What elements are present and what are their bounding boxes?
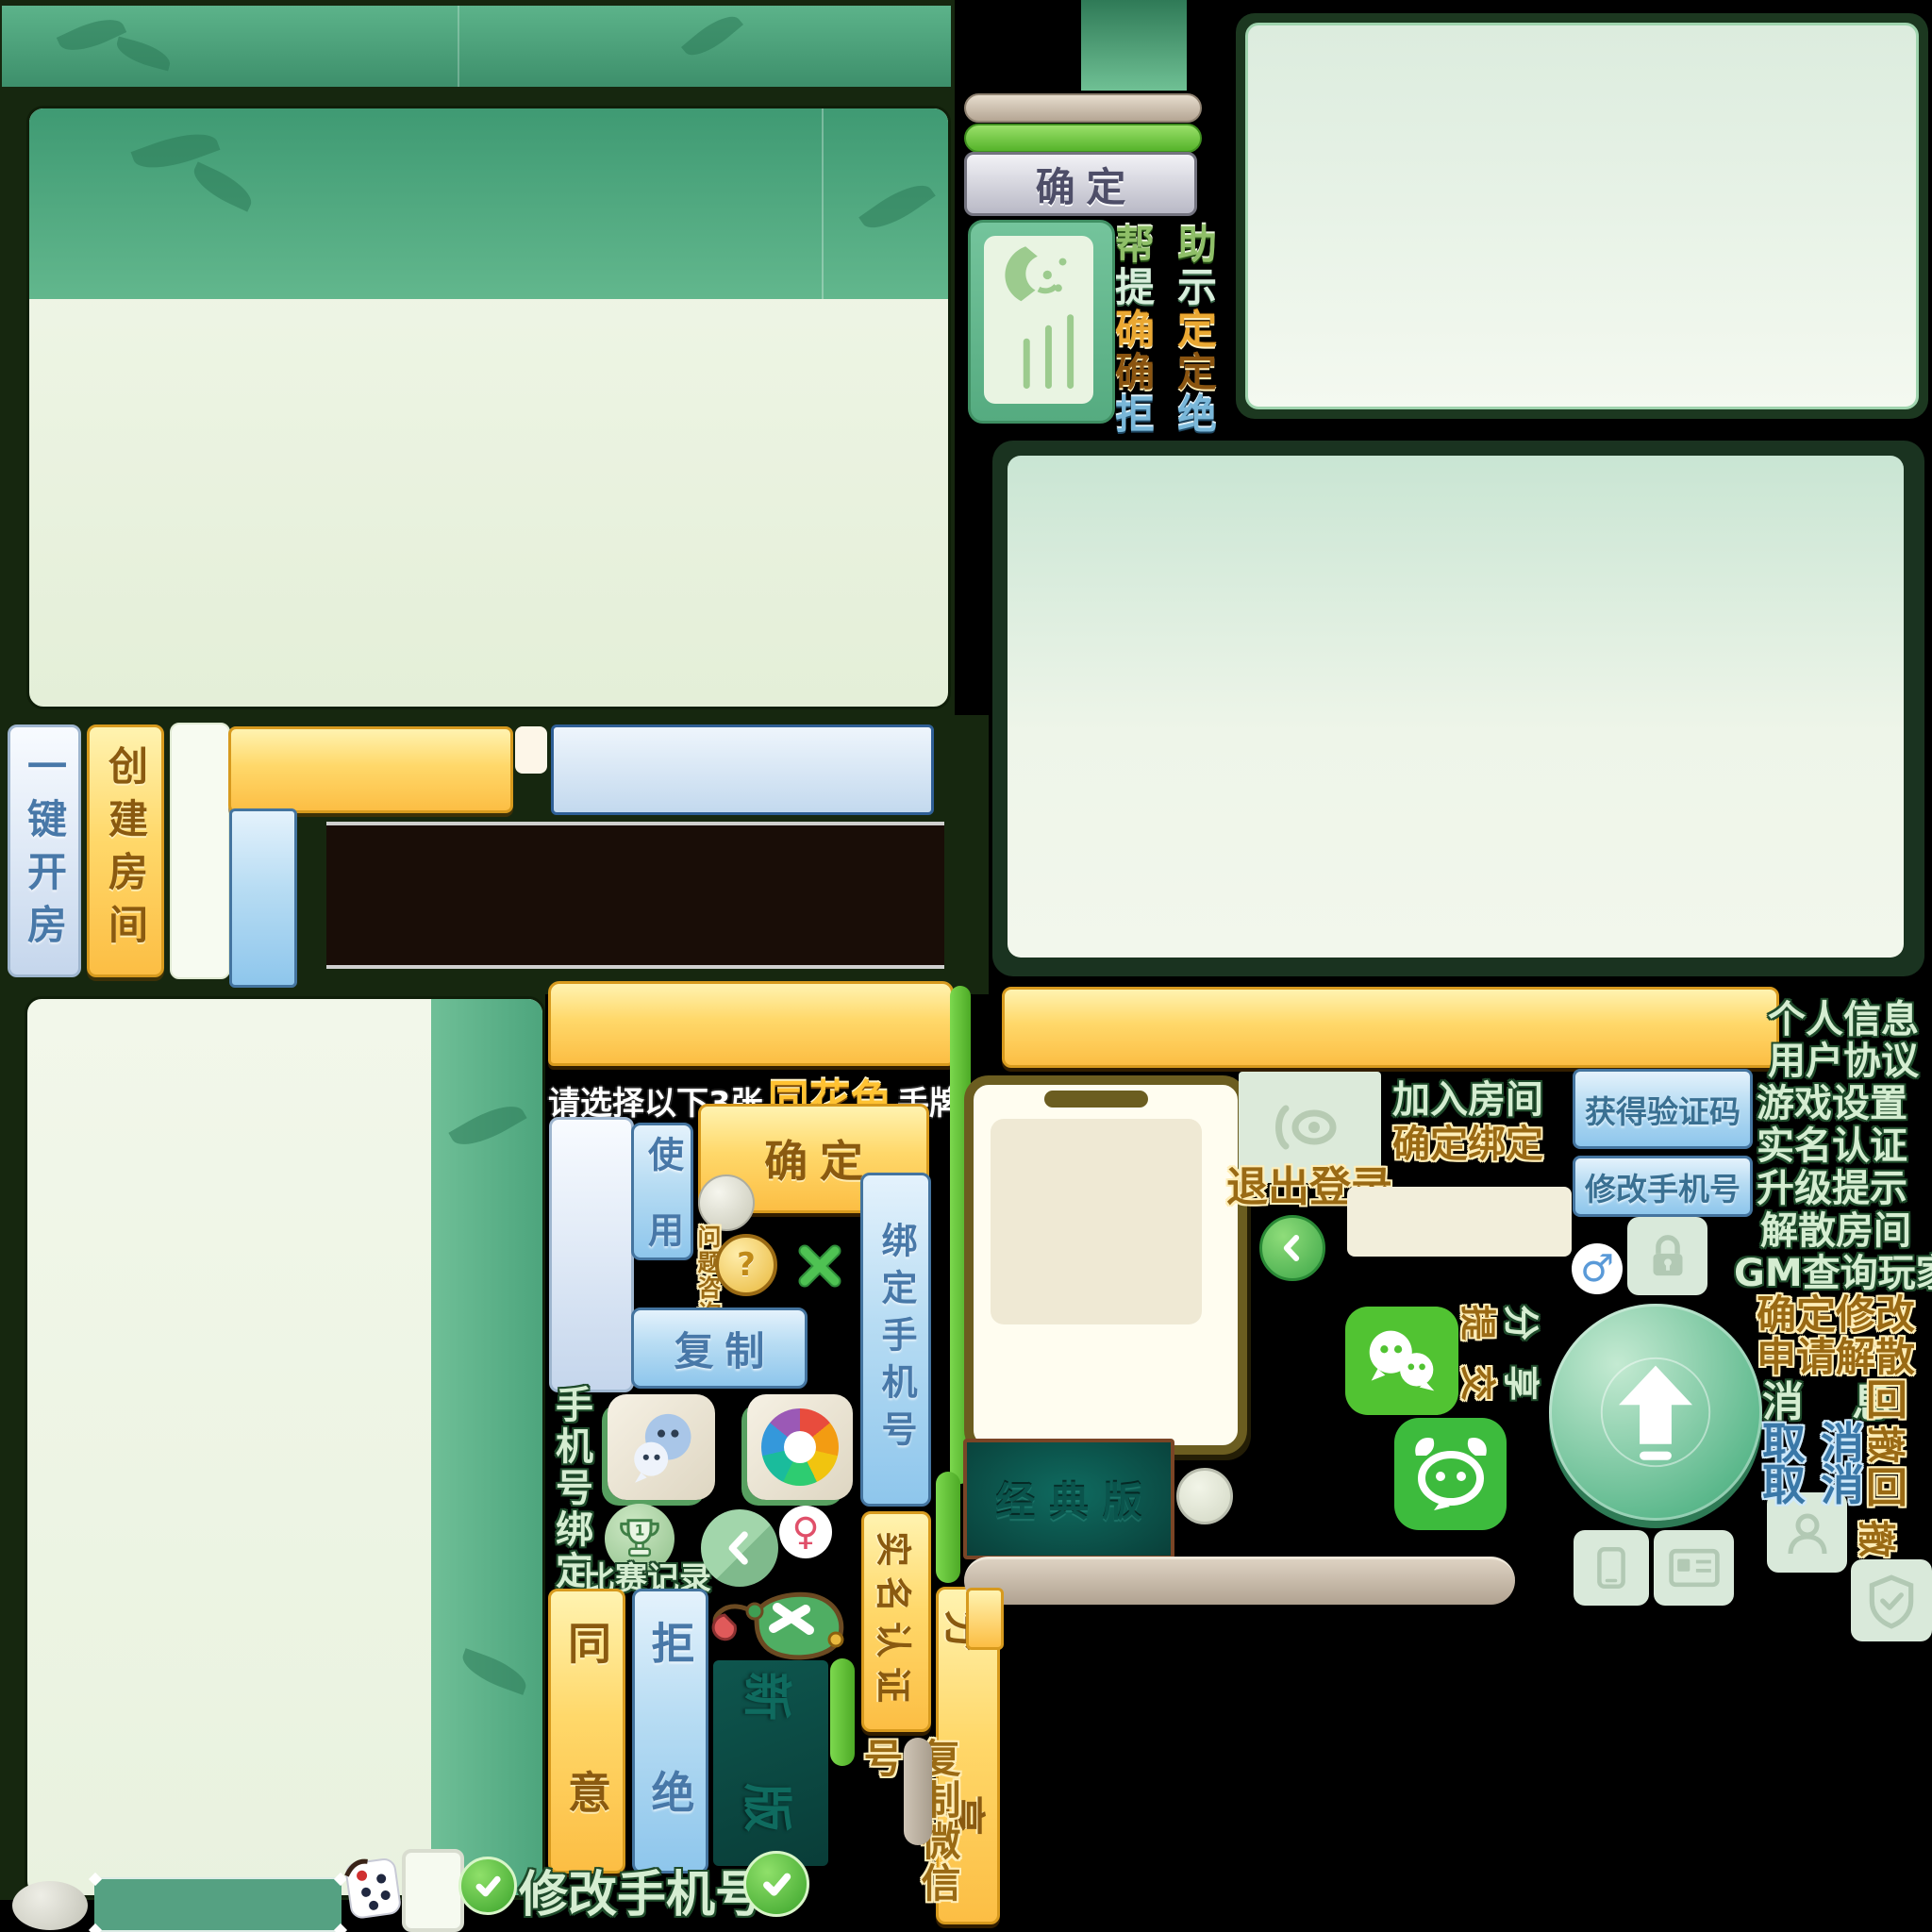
wechat-bubbles-icon [619,1405,704,1490]
create-room-label: 创建房间 [97,745,155,957]
chevron-left-icon [1276,1232,1308,1264]
sprite-atlas: 确 定 帮 助 提 示 确 定 确 定 拒 绝 [0,0,1932,1932]
yellow-header-bar-mid [548,981,954,1066]
eye-hidden-icon [1271,1101,1350,1154]
classic-version-label: 经 典 版 [995,1471,1141,1528]
label-help-1: 帮 [1111,213,1158,256]
upload-arrow-icon [1594,1351,1717,1474]
back-button-muted[interactable] [701,1509,778,1587]
blank-blue-vertical-bar[interactable] [229,808,297,988]
confirm-gray-button[interactable]: 确 定 [964,152,1197,216]
agree-label: 同 意 [556,1621,618,1841]
phone-plate[interactable] [1574,1530,1649,1606]
dice-icon[interactable] [341,1844,402,1925]
panda-stats-card[interactable] [968,220,1115,424]
blank-tile-square [402,1849,464,1932]
female-symbol-icon: ♀ [779,1506,832,1558]
pale-circle-blank [1176,1468,1233,1524]
panda-stats-inner [984,236,1093,404]
wechat-app-button[interactable] [1345,1307,1458,1415]
check-icon-small [458,1857,517,1915]
chevron-left-icon [719,1527,760,1569]
close-x-icon[interactable] [795,1241,844,1291]
refuse-label: 拒 绝 [640,1621,702,1841]
input-field-beige[interactable] [1347,1187,1572,1257]
back-button-green[interactable] [1259,1215,1325,1281]
lock-icon [1639,1227,1697,1286]
yellow-header-bar-right [1002,987,1779,1068]
banner-strip-small [1081,0,1187,91]
classic-version-board[interactable]: 经 典 版 [963,1439,1174,1559]
recall-che-2: 撤 [1852,1520,1907,1557]
aperture-icon [761,1408,839,1486]
label-help-2: 助 [1174,213,1221,256]
wechat-tile-button[interactable] [608,1394,715,1500]
panda-chart-icon [984,236,1093,404]
new-version-board: 新 版 [713,1660,828,1866]
share-label-rotated: 分享 [1498,1305,1550,1425]
create-room-button[interactable]: 创建房间 [87,724,164,977]
bind-phone-button[interactable]: 绑定手机号 [860,1173,931,1507]
label-hint-2: 示 [1174,256,1221,298]
label-confirm-2: 定 [1174,298,1221,341]
label-refuse-2: 绝 [1174,383,1221,425]
shield-plate[interactable] [1851,1559,1932,1641]
gray-pill-c [904,1738,932,1845]
panel-mid-right [1008,456,1904,958]
wechat-logo-icon [1353,1315,1451,1407]
get-verify-code-button[interactable]: 获得验证码 [1573,1069,1753,1149]
new-version-label: 新 版 [736,1672,807,1855]
one-key-room-button[interactable]: 一键开房 [8,724,81,977]
dialog-panel-header [29,108,948,299]
blank-cream-square [515,726,547,774]
bull-face-icon [1404,1427,1498,1522]
gray-ellipse-blank [12,1881,88,1930]
copy-button[interactable]: 复 制 [631,1307,808,1389]
green-progress-pill [964,124,1202,153]
lock-plate[interactable] [1627,1217,1707,1295]
word-pair-grid: 帮 助 提 示 确 定 确 定 拒 绝 [1111,213,1223,432]
label-confirm2-1: 确 [1111,341,1158,383]
agree-button[interactable]: 同 意 [548,1589,625,1874]
green-pill-b [936,1472,960,1583]
copy-label: 复 制 [675,1320,765,1377]
gray-circle-blank [698,1174,755,1231]
blank-pale-strip[interactable] [549,1117,634,1392]
bull-chat-app-button[interactable] [1394,1418,1507,1530]
confirm-gray-label: 确 定 [1036,156,1126,213]
bind-phone-label: 绑定手机号 [870,1222,922,1457]
tan-bar-long [964,1557,1515,1605]
refuse-button[interactable]: 拒 绝 [632,1589,708,1874]
id-card-plate[interactable] [1654,1530,1734,1606]
banner-strip [2,6,951,87]
label-confirm-1: 确 [1111,298,1158,341]
one-key-room-label: 一键开房 [16,745,74,957]
phone-mockup [964,1075,1247,1455]
camera-tile-button[interactable] [747,1394,853,1500]
realname-auth-label: 实名认证 [871,1531,923,1712]
phone-screen-inset [991,1119,1202,1324]
yellow-square-partial [966,1588,1004,1650]
panel-top-right [1245,23,1919,409]
confirm-yellow-label: 确 定 [764,1127,863,1190]
dice-bag-icon[interactable] [696,1585,858,1668]
modify-phone-button-label: 修改手机号 [1585,1164,1740,1209]
blank-blue-bar[interactable] [551,724,934,815]
modify-phone-button[interactable]: 修改手机号 [1573,1156,1753,1217]
male-symbol-icon: ♂ [1572,1243,1623,1294]
dialog-panel-large [26,106,951,709]
recall-hui-2: 回 [1866,1454,1907,1514]
recall-hui-1: 回 [1866,1366,1907,1426]
shield-check-icon [1862,1572,1921,1630]
selection-band[interactable] [94,1877,341,1932]
realname-auth-button[interactable]: 实名认证 [861,1511,931,1732]
confirm-bind-label[interactable]: 确定绑定 [1392,1113,1543,1168]
modify-phone-bottom-label[interactable]: 修改手机号 [519,1855,764,1925]
label-hint-1: 提 [1111,256,1158,298]
check-icon-large [743,1851,809,1917]
use-label: 使 用 [637,1136,689,1247]
phone-icon [1586,1542,1637,1593]
label-refuse-1: 拒 [1111,383,1158,425]
dark-list-panel [326,822,944,969]
blank-vertical-button[interactable] [170,723,230,979]
panel-bottom-left-green-strip [431,999,542,1895]
label-confirm2-2: 定 [1174,341,1221,383]
cancel-xiao-2[interactable]: 消 [1821,1451,1864,1513]
panel-top-right-frame [1236,13,1928,419]
panel-bottom-left [25,996,545,1898]
cancel-qu-2[interactable]: 取 [1762,1451,1806,1513]
question-mark: ? [737,1246,756,1284]
upgrade-upload-button[interactable] [1549,1304,1762,1521]
phone-speaker-slot [1044,1091,1148,1108]
trophy-number: 1 [635,1522,645,1539]
id-card-icon [1666,1542,1723,1593]
panel-mid-right-frame [992,441,1924,976]
question-coin-icon[interactable]: ? [715,1234,777,1296]
tan-progress-pill [964,93,1202,123]
get-verify-code-label: 获得验证码 [1585,1087,1740,1132]
use-button[interactable]: 使 用 [631,1123,693,1260]
blank-yellow-bar[interactable] [228,726,513,813]
